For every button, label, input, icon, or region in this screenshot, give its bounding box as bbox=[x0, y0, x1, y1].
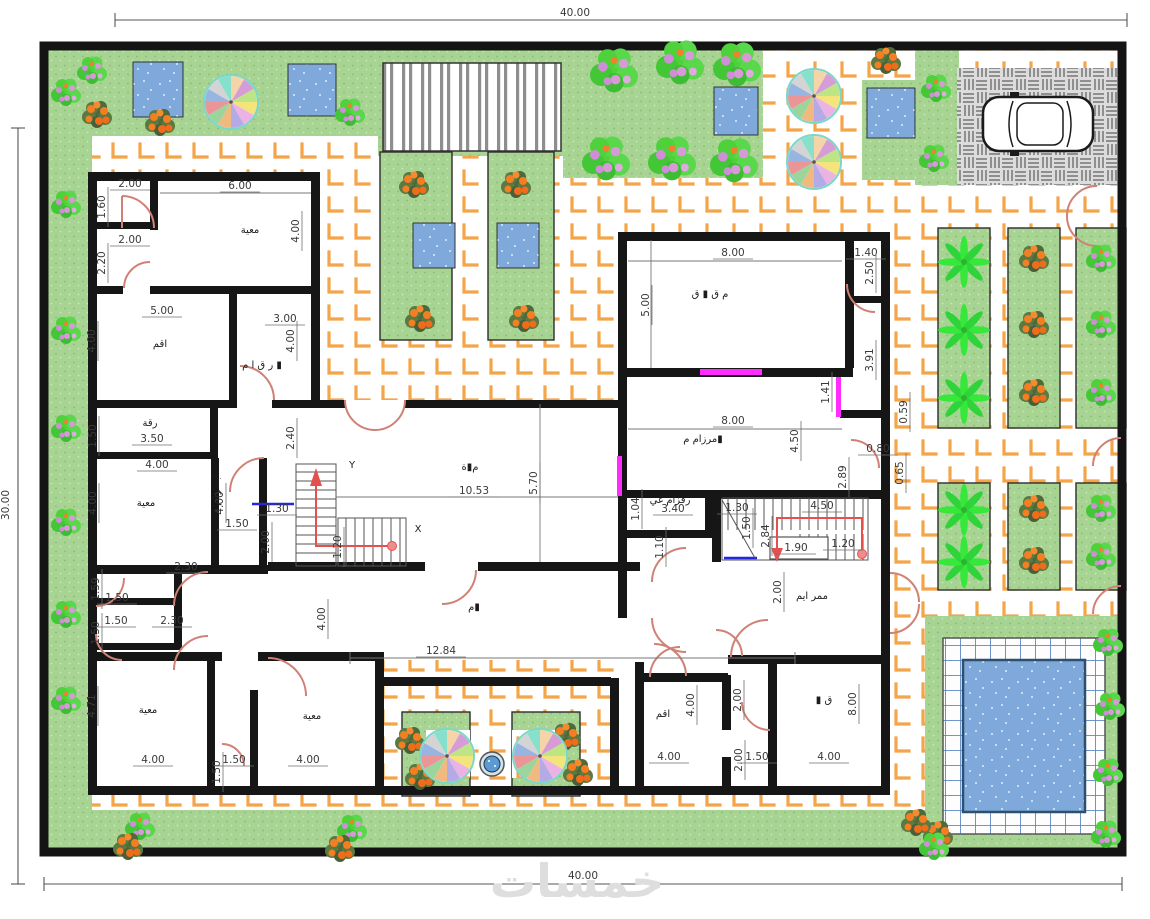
dim-label: 40.00 bbox=[560, 7, 590, 19]
dim-label: 1.50 bbox=[745, 751, 768, 763]
room-label: مرزام م▮ bbox=[683, 434, 723, 445]
dim-label: 4.50 bbox=[810, 500, 833, 512]
dim-label: 1.50 bbox=[87, 424, 99, 447]
dim-label: 2.50 bbox=[864, 261, 876, 284]
room-label: معية bbox=[241, 225, 260, 236]
room-label: معية bbox=[137, 498, 156, 509]
room-label: X bbox=[415, 524, 422, 535]
dim-label: 12.84 bbox=[426, 645, 456, 657]
dim-label: 2.84 bbox=[760, 524, 772, 548]
dim-label: 1.41 bbox=[820, 380, 832, 403]
car-top-view bbox=[983, 92, 1093, 156]
pond bbox=[714, 87, 758, 135]
floor-plan-page: خمسات 40.0040.0030.002.001.602.002.206.0… bbox=[0, 0, 1150, 919]
dim-label: 1.40 bbox=[854, 247, 877, 259]
dim-label: 1.50 bbox=[105, 592, 128, 604]
parasol bbox=[204, 75, 258, 129]
pond bbox=[413, 223, 455, 268]
dim-label: 2.00 bbox=[118, 234, 141, 246]
dim-label: 8.00 bbox=[847, 692, 859, 715]
pool-water bbox=[963, 660, 1085, 812]
pond bbox=[497, 223, 539, 268]
dim-label: 4.00 bbox=[285, 329, 297, 352]
dim-label: 1.59 bbox=[90, 577, 102, 600]
dim-label: 4.00 bbox=[316, 607, 328, 630]
palm bbox=[938, 236, 990, 288]
room-label: اقم bbox=[656, 709, 670, 720]
room-label: اقم bbox=[153, 339, 167, 350]
dim-label: 4.00 bbox=[290, 219, 302, 242]
palm bbox=[938, 372, 990, 424]
dim-label: 0.59 bbox=[898, 400, 910, 423]
dim-label: 1.50 bbox=[741, 516, 753, 539]
dim-label: 3.50 bbox=[140, 433, 163, 445]
fountain bbox=[480, 752, 504, 776]
dim-label: 5.00 bbox=[150, 305, 173, 317]
dim-label: 1.50 bbox=[225, 518, 248, 530]
dim-label: 4.00 bbox=[296, 754, 319, 766]
room-label: معية bbox=[303, 711, 322, 722]
dim-label: 1.20 bbox=[332, 535, 344, 558]
window-magenta bbox=[617, 456, 622, 496]
dim-label: 1.10 bbox=[654, 535, 666, 558]
dim-label: 2.30 bbox=[174, 561, 197, 573]
dim-label: 10.53 bbox=[459, 485, 489, 497]
pond bbox=[133, 62, 183, 117]
room-label: ▮ ق bbox=[816, 695, 832, 706]
room-label: ممر ايم bbox=[796, 591, 828, 602]
dim-label: 4.00 bbox=[87, 491, 99, 514]
dim-label: 2.20 bbox=[96, 251, 108, 274]
dim-label: 4.71 bbox=[86, 694, 98, 717]
dim-label: 5.00 bbox=[640, 293, 652, 316]
dim-label: 1.50 bbox=[104, 615, 127, 627]
room-label: م▮ة bbox=[462, 462, 479, 473]
dim-label: 8.00 bbox=[721, 247, 744, 259]
dim-label: 2.00 bbox=[732, 688, 744, 711]
parasol bbox=[787, 69, 841, 123]
room-label: رقزام غي bbox=[650, 495, 691, 506]
swimming-pool bbox=[925, 616, 1123, 856]
palm bbox=[938, 536, 990, 588]
room-label: ر ق ا م ▮ bbox=[242, 360, 282, 371]
dim-label: 2.00 bbox=[733, 748, 745, 771]
room-label: رقة bbox=[143, 418, 158, 429]
parasol bbox=[513, 729, 567, 783]
dim-label: 6.00 bbox=[228, 180, 251, 192]
dim-label: 4.00 bbox=[817, 751, 840, 763]
dim-label: 1.04 bbox=[630, 497, 642, 521]
dim-label: 2.30 bbox=[160, 615, 183, 627]
parasol bbox=[420, 729, 474, 783]
dim-label: 1.30 bbox=[265, 503, 288, 515]
room-label: م▮ bbox=[468, 602, 480, 613]
dim-label: 1.50 bbox=[222, 754, 245, 766]
garden-strip-left bbox=[48, 46, 92, 852]
dim-label: 2.89 bbox=[837, 465, 849, 488]
dim-label: 4.00 bbox=[657, 751, 680, 763]
room-label: Y bbox=[348, 460, 356, 471]
pergola bbox=[383, 63, 561, 151]
dim-label: 4.00 bbox=[145, 459, 168, 471]
dim-label: 4.00 bbox=[685, 693, 697, 716]
dim-label: 5.70 bbox=[528, 471, 540, 494]
dim-label: 4.50 bbox=[789, 429, 801, 452]
dim-label: 2.00 bbox=[772, 580, 784, 603]
dim-label: 2.00 bbox=[260, 530, 272, 553]
window-magenta bbox=[836, 377, 841, 417]
dim-label: 1.20 bbox=[831, 538, 854, 550]
dim-label: 0.80 bbox=[866, 443, 889, 455]
dim-label: 1.60 bbox=[96, 195, 108, 218]
window-magenta bbox=[700, 369, 762, 375]
palm bbox=[938, 484, 990, 536]
dim-label: 30.00 bbox=[0, 490, 12, 520]
dim-label: 8.00 bbox=[721, 415, 744, 427]
parasol bbox=[787, 135, 841, 189]
dim-label: 2.00 bbox=[118, 178, 141, 190]
dim-label: 1.50 bbox=[90, 621, 102, 644]
palm bbox=[938, 304, 990, 356]
dim-label: 0.65 bbox=[894, 461, 906, 484]
dim-label: 3.91 bbox=[864, 348, 876, 371]
pond bbox=[867, 88, 915, 138]
room-label: ابسرقم bbox=[211, 474, 222, 505]
dim-label: 3.00 bbox=[273, 313, 296, 325]
dim-label: 1.30 bbox=[725, 502, 748, 514]
dim-label: 2.40 bbox=[285, 426, 297, 449]
dim-label: 1.50 bbox=[211, 760, 223, 783]
garden-strip-bottom bbox=[48, 810, 928, 852]
room-label: معية bbox=[139, 705, 158, 716]
floor-plan-canvas: خمسات 40.0040.0030.002.001.602.002.206.0… bbox=[0, 0, 1150, 919]
dim-label: 1.90 bbox=[784, 542, 807, 554]
pond bbox=[288, 64, 336, 116]
dim-label: 4.00 bbox=[86, 329, 98, 352]
dim-label: 4.00 bbox=[141, 754, 164, 766]
room-label: م ق ▮ ق bbox=[692, 289, 729, 300]
dim-label: 40.00 bbox=[568, 870, 598, 882]
